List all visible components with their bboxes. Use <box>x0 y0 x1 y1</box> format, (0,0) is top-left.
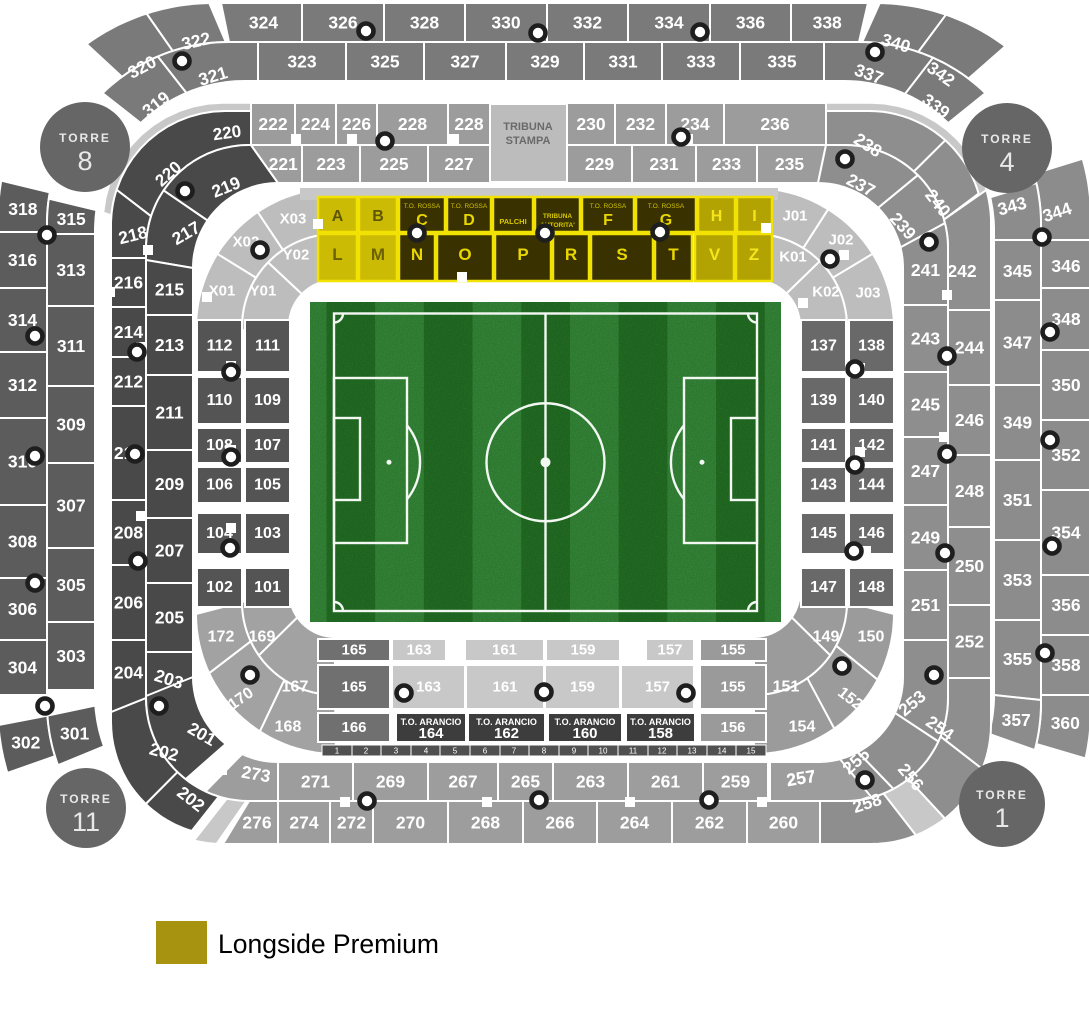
svg-text:216: 216 <box>114 273 143 293</box>
svg-text:L: L <box>332 245 342 264</box>
svg-text:262: 262 <box>695 813 724 833</box>
svg-text:346: 346 <box>1051 256 1080 276</box>
svg-text:351: 351 <box>1003 490 1032 510</box>
svg-text:271: 271 <box>301 772 330 792</box>
svg-text:O: O <box>458 245 471 264</box>
svg-text:172: 172 <box>208 629 235 646</box>
svg-text:STAMPA: STAMPA <box>506 135 551 147</box>
svg-text:164: 164 <box>418 725 444 742</box>
svg-text:269: 269 <box>376 772 405 792</box>
svg-text:243: 243 <box>911 329 940 349</box>
svg-text:232: 232 <box>626 114 655 134</box>
svg-text:311: 311 <box>57 336 85 356</box>
svg-text:228: 228 <box>454 114 483 134</box>
svg-text:10: 10 <box>599 747 608 756</box>
svg-text:150: 150 <box>858 629 885 646</box>
svg-text:215: 215 <box>155 280 184 300</box>
svg-text:Z: Z <box>749 245 759 264</box>
svg-text:227: 227 <box>444 154 473 174</box>
svg-text:B: B <box>372 208 384 225</box>
svg-text:112: 112 <box>207 338 233 355</box>
svg-text:141: 141 <box>810 437 837 454</box>
svg-text:P: P <box>517 245 528 264</box>
svg-text:236: 236 <box>760 114 789 134</box>
svg-text:148: 148 <box>858 579 885 596</box>
svg-text:J02: J02 <box>828 232 853 249</box>
svg-text:R: R <box>565 245 577 264</box>
svg-text:205: 205 <box>155 608 184 628</box>
svg-text:155: 155 <box>720 642 745 659</box>
svg-text:163: 163 <box>416 679 441 696</box>
svg-text:358: 358 <box>1051 655 1080 675</box>
svg-text:324: 324 <box>249 13 278 33</box>
svg-text:305: 305 <box>56 575 85 595</box>
svg-text:8: 8 <box>77 146 92 176</box>
svg-text:143: 143 <box>810 477 837 494</box>
svg-text:213: 213 <box>155 335 184 355</box>
svg-text:303: 303 <box>56 646 85 666</box>
svg-text:220: 220 <box>212 122 243 145</box>
svg-text:159: 159 <box>570 642 595 659</box>
svg-text:318: 318 <box>8 199 37 219</box>
svg-text:245: 245 <box>911 395 940 415</box>
svg-text:350: 350 <box>1051 375 1080 395</box>
svg-text:315: 315 <box>57 209 86 229</box>
svg-text:204: 204 <box>114 663 143 683</box>
svg-text:270: 270 <box>396 813 425 833</box>
svg-text:167: 167 <box>282 679 309 696</box>
svg-text:138: 138 <box>858 338 885 355</box>
svg-text:6: 6 <box>483 747 488 756</box>
svg-text:241: 241 <box>911 260 940 280</box>
svg-text:4: 4 <box>424 747 429 756</box>
svg-text:261: 261 <box>651 772 680 792</box>
svg-text:231: 231 <box>649 154 678 174</box>
svg-text:242: 242 <box>947 261 976 281</box>
svg-text:166: 166 <box>341 719 366 736</box>
svg-text:Y01: Y01 <box>250 283 277 300</box>
svg-text:157: 157 <box>645 679 670 696</box>
svg-text:257: 257 <box>785 766 817 790</box>
svg-text:2: 2 <box>364 747 369 756</box>
svg-text:260: 260 <box>769 813 798 833</box>
svg-text:301: 301 <box>60 724 89 744</box>
svg-text:102: 102 <box>206 579 233 596</box>
svg-text:251: 251 <box>911 595 940 615</box>
svg-text:168: 168 <box>275 719 302 736</box>
svg-text:306: 306 <box>8 599 37 619</box>
svg-text:9: 9 <box>572 747 577 756</box>
svg-text:149: 149 <box>813 629 840 646</box>
svg-text:345: 345 <box>1003 261 1032 281</box>
svg-text:K02: K02 <box>812 284 840 301</box>
svg-text:250: 250 <box>955 556 984 576</box>
svg-text:329: 329 <box>530 52 559 72</box>
svg-text:13: 13 <box>688 747 697 756</box>
svg-text:T: T <box>668 245 679 264</box>
svg-text:159: 159 <box>570 679 595 696</box>
svg-text:360: 360 <box>1051 713 1080 733</box>
svg-text:229: 229 <box>585 154 614 174</box>
svg-text:333: 333 <box>686 52 715 72</box>
svg-text:161: 161 <box>492 642 517 659</box>
svg-text:S: S <box>616 245 627 264</box>
svg-text:D: D <box>463 212 475 229</box>
svg-text:211: 211 <box>155 403 183 423</box>
svg-text:107: 107 <box>254 437 281 454</box>
svg-text:T.O. ROSSA: T.O. ROSSA <box>404 203 441 210</box>
svg-text:158: 158 <box>648 725 673 742</box>
svg-text:TORRE: TORRE <box>981 132 1033 146</box>
svg-text:252: 252 <box>955 632 984 652</box>
svg-text:347: 347 <box>1003 333 1032 353</box>
svg-text:Longside Premium: Longside Premium <box>218 929 439 959</box>
svg-text:106: 106 <box>206 477 233 494</box>
svg-text:226: 226 <box>342 114 371 134</box>
svg-text:144: 144 <box>858 477 885 494</box>
svg-text:Y02: Y02 <box>283 247 310 264</box>
svg-text:263: 263 <box>576 772 605 792</box>
svg-text:308: 308 <box>8 532 37 552</box>
svg-text:316: 316 <box>8 250 37 270</box>
svg-text:304: 304 <box>8 658 37 678</box>
svg-text:T.O. ROSSA: T.O. ROSSA <box>590 203 627 210</box>
svg-text:K01: K01 <box>779 249 807 266</box>
svg-text:154: 154 <box>789 719 816 736</box>
svg-text:11: 11 <box>629 747 638 756</box>
svg-text:162: 162 <box>494 725 519 742</box>
svg-text:228: 228 <box>398 114 427 134</box>
svg-text:11: 11 <box>72 807 100 837</box>
svg-text:156: 156 <box>720 719 745 736</box>
svg-text:8: 8 <box>542 747 547 756</box>
svg-text:221: 221 <box>269 154 298 174</box>
svg-text:332: 332 <box>573 13 602 33</box>
svg-text:T.O. ROSSA: T.O. ROSSA <box>451 203 488 210</box>
svg-text:206: 206 <box>114 593 143 613</box>
svg-text:276: 276 <box>242 813 271 833</box>
svg-text:331: 331 <box>608 52 637 72</box>
svg-text:268: 268 <box>471 813 500 833</box>
svg-text:223: 223 <box>316 154 345 174</box>
svg-text:X01: X01 <box>209 283 236 300</box>
svg-text:249: 249 <box>911 528 940 548</box>
svg-text:307: 307 <box>56 496 85 516</box>
svg-text:169: 169 <box>249 629 276 646</box>
svg-text:H: H <box>711 208 723 225</box>
svg-text:230: 230 <box>576 114 605 134</box>
svg-text:356: 356 <box>1051 595 1080 615</box>
svg-text:14: 14 <box>718 747 727 756</box>
svg-text:V: V <box>709 245 721 264</box>
svg-text:145: 145 <box>810 525 837 542</box>
svg-text:272: 272 <box>337 813 366 833</box>
svg-text:328: 328 <box>410 13 439 33</box>
svg-text:327: 327 <box>450 52 479 72</box>
svg-text:T.O. ROSSA: T.O. ROSSA <box>648 203 685 210</box>
svg-text:101: 101 <box>254 579 281 596</box>
svg-text:A: A <box>332 208 344 225</box>
svg-text:353: 353 <box>1003 570 1032 590</box>
svg-text:336: 336 <box>736 13 765 33</box>
svg-text:248: 248 <box>955 481 984 501</box>
svg-text:M: M <box>371 245 385 264</box>
svg-text:146: 146 <box>858 525 885 542</box>
svg-text:111: 111 <box>255 338 280 355</box>
svg-text:155: 155 <box>720 679 745 696</box>
svg-text:I: I <box>752 208 756 225</box>
svg-text:F: F <box>603 212 613 229</box>
svg-text:N: N <box>411 245 423 264</box>
svg-text:TRIBUNA: TRIBUNA <box>543 213 573 220</box>
svg-text:323: 323 <box>287 52 316 72</box>
svg-text:157: 157 <box>657 642 682 659</box>
svg-text:151: 151 <box>773 679 800 696</box>
svg-text:X03: X03 <box>280 211 307 228</box>
svg-text:235: 235 <box>775 154 804 174</box>
svg-text:246: 246 <box>955 410 984 430</box>
svg-text:15: 15 <box>747 747 756 756</box>
svg-text:163: 163 <box>406 642 431 659</box>
svg-text:214: 214 <box>114 322 143 342</box>
svg-text:165: 165 <box>341 679 366 696</box>
svg-text:1: 1 <box>335 747 340 756</box>
svg-text:244: 244 <box>955 338 984 358</box>
svg-text:110: 110 <box>207 392 233 409</box>
svg-text:326: 326 <box>328 13 357 33</box>
svg-text:222: 222 <box>258 114 287 134</box>
svg-text:247: 247 <box>911 461 940 481</box>
svg-text:325: 325 <box>370 52 399 72</box>
svg-text:109: 109 <box>254 392 281 409</box>
svg-text:334: 334 <box>654 13 683 33</box>
svg-text:338: 338 <box>813 13 842 33</box>
svg-text:147: 147 <box>810 579 837 596</box>
svg-text:264: 264 <box>620 813 649 833</box>
svg-text:309: 309 <box>56 415 85 435</box>
svg-text:12: 12 <box>658 747 667 756</box>
svg-text:267: 267 <box>448 772 477 792</box>
svg-text:160: 160 <box>572 725 597 742</box>
svg-text:TORRE: TORRE <box>976 788 1028 802</box>
svg-text:103: 103 <box>254 525 281 542</box>
svg-text:335: 335 <box>767 52 796 72</box>
svg-text:J01: J01 <box>782 208 807 225</box>
svg-text:352: 352 <box>1051 445 1080 465</box>
svg-text:J03: J03 <box>855 285 880 302</box>
svg-text:225: 225 <box>379 154 408 174</box>
svg-text:161: 161 <box>492 679 517 696</box>
svg-text:357: 357 <box>1002 710 1031 730</box>
svg-text:PALCHI: PALCHI <box>499 217 526 226</box>
svg-text:265: 265 <box>511 772 540 792</box>
svg-text:137: 137 <box>810 338 837 355</box>
svg-text:3: 3 <box>394 747 399 756</box>
svg-text:4: 4 <box>999 147 1014 177</box>
svg-text:139: 139 <box>810 392 837 409</box>
svg-text:165: 165 <box>341 642 366 659</box>
svg-text:TORRE: TORRE <box>60 792 112 806</box>
svg-text:302: 302 <box>11 733 40 753</box>
svg-text:313: 313 <box>56 260 85 280</box>
svg-text:330: 330 <box>491 13 520 33</box>
svg-text:266: 266 <box>545 813 574 833</box>
svg-text:TORRE: TORRE <box>59 131 111 145</box>
svg-text:TRIBUNA: TRIBUNA <box>503 121 553 133</box>
svg-text:274: 274 <box>289 813 318 833</box>
svg-text:355: 355 <box>1003 649 1032 669</box>
svg-text:1: 1 <box>994 803 1009 833</box>
svg-text:233: 233 <box>712 154 741 174</box>
svg-text:105: 105 <box>254 477 281 494</box>
svg-text:349: 349 <box>1003 413 1032 433</box>
svg-text:208: 208 <box>114 523 143 543</box>
svg-text:207: 207 <box>155 541 184 561</box>
svg-text:5: 5 <box>453 747 458 756</box>
svg-text:212: 212 <box>114 372 143 392</box>
svg-text:259: 259 <box>721 772 750 792</box>
svg-text:312: 312 <box>8 375 37 395</box>
svg-text:209: 209 <box>155 474 184 494</box>
svg-text:140: 140 <box>858 392 885 409</box>
svg-text:7: 7 <box>512 747 517 756</box>
svg-text:224: 224 <box>301 114 330 134</box>
